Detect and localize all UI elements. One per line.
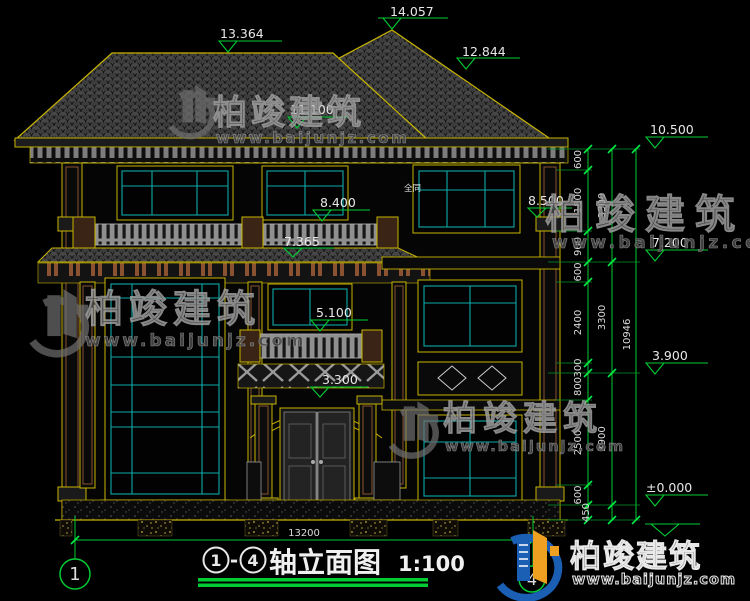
dim-b-1: 3300 <box>597 305 608 330</box>
svg-text:1: 1 <box>69 564 80 585</box>
watermark-right: 柏竣建筑 www.baijunjz.com <box>545 192 750 253</box>
dim-a-3: 600 <box>573 262 584 281</box>
elevation-drawing: 全同 <box>0 0 750 601</box>
brand-url: www.baijunjz.com <box>572 572 736 588</box>
drawing-title: 1 - 4 轴立面图 1:100 <box>198 546 465 587</box>
watermark-brand: 柏竣建筑 <box>85 287 261 331</box>
dim-total: 10946 <box>622 319 633 351</box>
dim-width: 13200 <box>288 528 320 539</box>
title-axis-separator: - <box>230 548 238 572</box>
eave-dentil-band <box>30 147 568 163</box>
title-text: 轴立面图 <box>269 546 381 579</box>
watermark-center-bottom: 柏竣建筑 www.baijunjz.com <box>391 399 625 456</box>
svg-text:3.300: 3.300 <box>322 372 358 387</box>
dim-a-5: 300 <box>573 358 584 377</box>
brand-name: 柏竣建筑 <box>570 539 702 575</box>
svg-text:±0.000: ±0.000 <box>646 480 692 495</box>
level-ridge-right: 12.844 <box>457 44 520 69</box>
watermark-url: www.baijunjz.com <box>216 129 409 147</box>
level-ridge-main: 14.057 <box>378 4 448 29</box>
watermark-brand: 柏竣建筑 <box>213 93 365 133</box>
dim-a-8: 600 <box>573 485 584 504</box>
pedestal-left <box>247 462 261 500</box>
deco-panel-right <box>418 362 522 395</box>
porch-x-band <box>238 364 384 388</box>
title-axis-start: 1 <box>210 551 221 570</box>
level-ridge-left: 13.364 <box>219 26 282 52</box>
svg-text:13.364: 13.364 <box>220 26 264 41</box>
svg-text:12.844: 12.844 <box>462 44 506 59</box>
plinth-band <box>62 500 560 520</box>
svg-text:8.400: 8.400 <box>320 195 356 210</box>
watermark-url: www.baijunjz.com <box>552 233 750 253</box>
watermark-url: www.baijunjz.com <box>85 331 307 351</box>
dim-a-9: 450 <box>581 503 592 522</box>
svg-text:7.365: 7.365 <box>284 234 320 249</box>
level-right-10500: 10.500 <box>646 122 708 148</box>
mid-tile-eave <box>38 248 428 262</box>
pedestal-right <box>374 462 400 500</box>
watermark-brand: 柏竣建筑 <box>545 192 745 238</box>
cad-canvas: 全同 <box>0 0 750 601</box>
title-underline-1 <box>198 578 428 582</box>
level-right-zero: ±0.000 <box>646 480 708 506</box>
dim-a-4: 2400 <box>573 310 584 335</box>
svg-text:14.057: 14.057 <box>390 4 434 19</box>
bracket-cornice <box>38 263 430 283</box>
title-axis-end: 4 <box>247 551 258 570</box>
level-right-3900: 3.900 <box>646 348 708 374</box>
dim-a-6: 800 <box>573 377 584 396</box>
right-slab-band <box>382 257 560 269</box>
title-scale: 1:100 <box>398 552 465 576</box>
window-2f-right <box>418 280 522 352</box>
window-3f-center <box>262 166 348 220</box>
window-note: 全同 <box>404 183 421 194</box>
axis-bubble-1: 1 <box>60 559 90 589</box>
level-footing-marker <box>645 524 700 536</box>
svg-text:5.100: 5.100 <box>316 305 352 320</box>
title-underline-2 <box>198 584 428 588</box>
svg-text:10.500: 10.500 <box>650 122 694 137</box>
window-3f-left <box>117 166 233 220</box>
window-3f-right: 全同 <box>404 165 520 233</box>
svg-text:3.900: 3.900 <box>652 348 688 363</box>
watermark-url: www.baijunjz.com <box>445 439 625 455</box>
watermark-brand: 柏竣建筑 <box>443 399 603 439</box>
dim-a-0: 600 <box>573 150 584 169</box>
